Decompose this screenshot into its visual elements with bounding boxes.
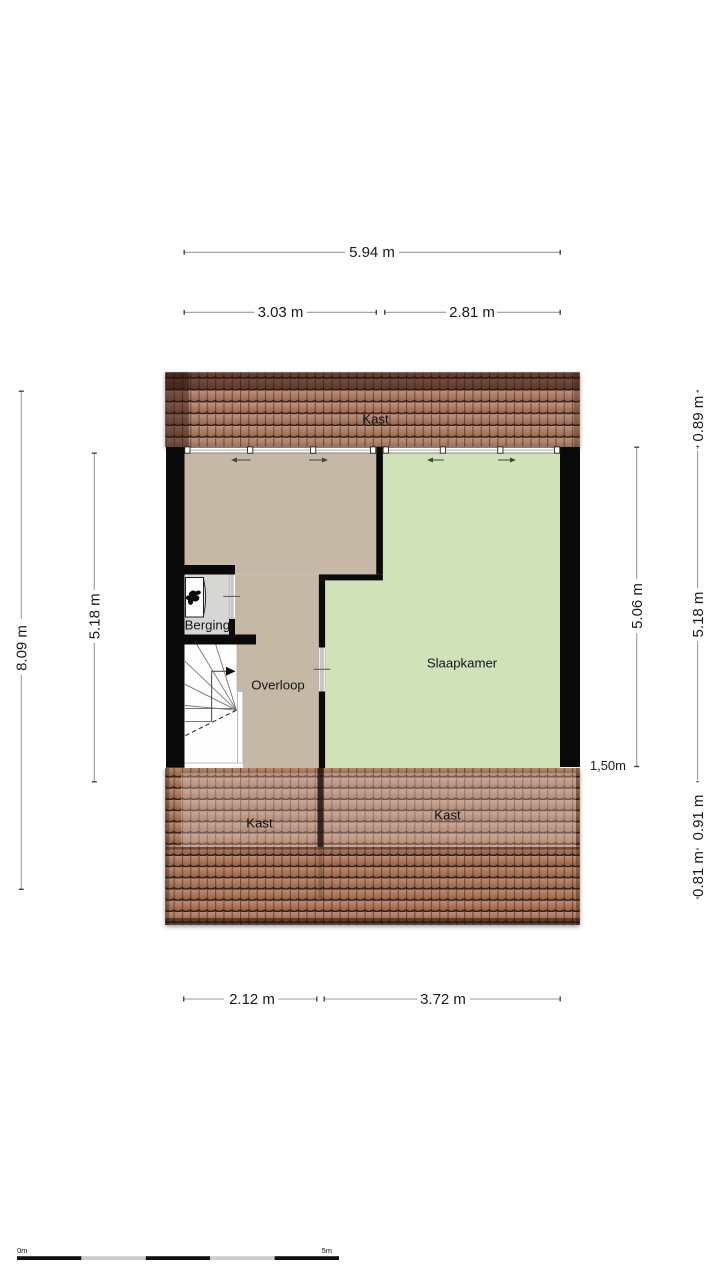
svg-text:Kast: Kast — [362, 411, 389, 426]
svg-text:5.06 m: 5.06 m — [629, 583, 646, 629]
svg-text:3.72 m: 3.72 m — [420, 991, 466, 1008]
svg-text:1,50m: 1,50m — [590, 758, 626, 773]
svg-text:Slaapkamer: Slaapkamer — [427, 656, 498, 671]
svg-text:Kast: Kast — [246, 816, 273, 831]
svg-text:5.18 m: 5.18 m — [87, 593, 104, 639]
svg-text:Kast: Kast — [434, 808, 461, 823]
svg-text:0m: 0m — [17, 1246, 27, 1255]
svg-text:2.12 m: 2.12 m — [229, 991, 275, 1008]
svg-text:Berging: Berging — [185, 618, 230, 633]
svg-text:5.18 m: 5.18 m — [690, 592, 707, 638]
svg-text:2.81 m: 2.81 m — [449, 304, 495, 321]
svg-text:5m: 5m — [322, 1246, 332, 1255]
svg-text:Overloop: Overloop — [251, 678, 305, 693]
svg-text:0.89 m: 0.89 m — [690, 396, 707, 442]
svg-text:5.94 m: 5.94 m — [349, 244, 395, 261]
svg-text:0.81 m: 0.81 m — [690, 851, 707, 897]
svg-text:0.91 m: 0.91 m — [690, 795, 707, 841]
svg-text:3.03 m: 3.03 m — [258, 304, 304, 321]
svg-text:8.09 m: 8.09 m — [14, 625, 31, 671]
